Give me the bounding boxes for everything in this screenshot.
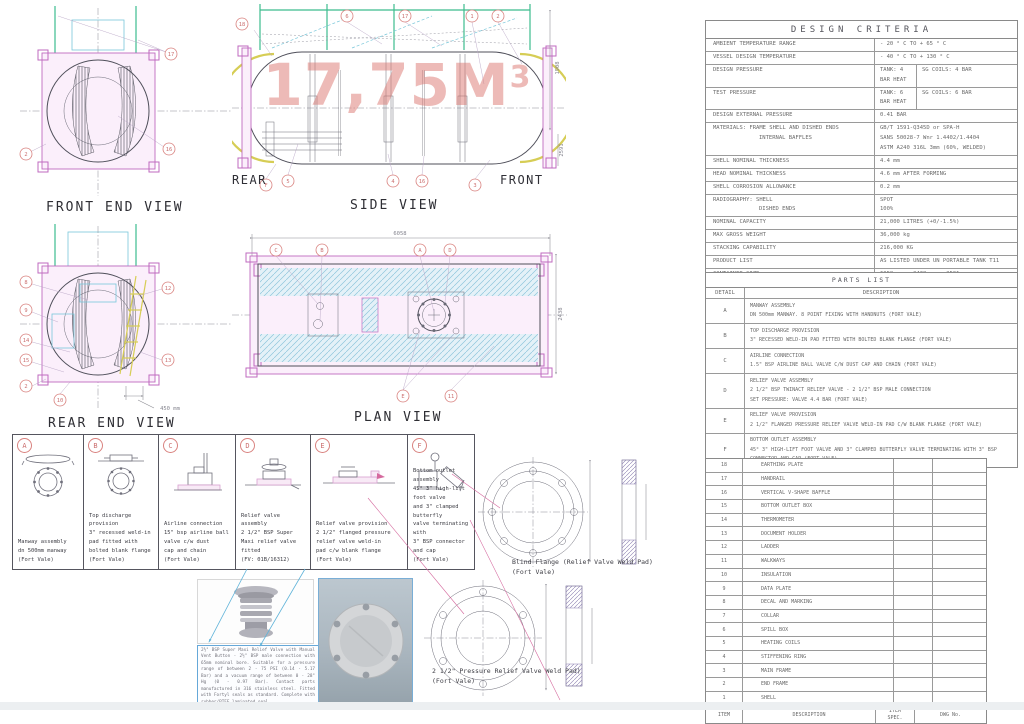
items-table-row: 4 STIFFENING RING	[706, 651, 986, 665]
parts-list-header: DETAIL DESCRIPTION	[706, 288, 1017, 299]
design-criteria-row: TEST PRESSURE TANK: 6 BAR HEATSG COILS: …	[706, 88, 1017, 111]
svg-text:17: 17	[168, 52, 175, 58]
relief-valve-photo-drawing	[227, 584, 285, 640]
parts-list-row: B TOP DISCHARGE PROVISION 3" RECESSED WE…	[706, 324, 1017, 349]
front-end-view: 17 2 16 FRONT END VIEW	[18, 6, 234, 222]
svg-text:3: 3	[473, 183, 476, 189]
detail-box-e: E Relief valve provision 2 1/2" flanged …	[311, 434, 408, 570]
items-table-row: 3 MAIN FRAME	[706, 664, 986, 678]
balloon-17: 17	[165, 48, 177, 60]
design-criteria-row: AMBIENT TEMPERATURE RANGE - 20 ° C TO + …	[706, 39, 1017, 52]
label-front: FRONT	[500, 173, 544, 187]
rear-end-view: 450 mm 8 9 14 15 2 12 13 10 REAR END VIE…	[18, 224, 234, 434]
side-view: 1908 2591 18 6 17 1 2 F 5 4 16 3 REAR FR…	[232, 4, 566, 216]
svg-text:C: C	[274, 248, 277, 254]
design-criteria-row: MAX GROSS WEIGHT 36,000 kg	[706, 230, 1017, 243]
detail-box-b: B Top discharge provision 3" recessed we…	[84, 434, 159, 570]
valve-spec-paragraph-1: 2½" BSP Super Maxi Relief Valve with Man…	[201, 648, 315, 706]
parts-list-rows: A MANWAY ASSEMBLY DN 500mm MANWAY. 8 POI…	[706, 299, 1017, 467]
front-end-view-title: FRONT END VIEW	[46, 200, 184, 215]
relief-pad-sketch-icon	[311, 451, 407, 499]
relief-valve-sketch-icon	[236, 451, 310, 499]
svg-text:16: 16	[419, 179, 426, 185]
sheet-bottom-strip	[0, 702, 1024, 710]
svg-text:2: 2	[24, 152, 27, 158]
items-table-rows: 18 EARTHING PLATE 17 HANDRAIL 16 VERTICA…	[706, 459, 986, 705]
items-table-row: 12 LADDER	[706, 541, 986, 555]
manway-sketch-icon	[13, 451, 83, 499]
design-criteria-row: NOMINAL CAPACITY 21,000 LITRES (+0/-1.5%…	[706, 217, 1017, 230]
items-table-row: 8 DECAL AND MARKING	[706, 596, 986, 610]
parts-list-row: C AIRLINE CONNECTION 1.5" BSP AIRLINE BA…	[706, 349, 1017, 374]
parts-list-row: A MANWAY ASSEMBLY DN 500mm MANWAY. 8 POI…	[706, 299, 1017, 324]
dim-2438: 2438	[558, 307, 564, 320]
svg-text:2: 2	[496, 14, 499, 20]
capacity-watermark: 17,75M3	[238, 56, 556, 114]
items-table-row: 16 VERTICAL V-SHAPE BAFFLE	[706, 486, 986, 500]
svg-text:14: 14	[23, 338, 30, 344]
svg-text:11: 11	[448, 394, 455, 400]
svg-text:9: 9	[24, 308, 27, 314]
svg-text:B: B	[320, 248, 323, 254]
dim-6058: 6058	[393, 231, 406, 237]
items-table-row: 13 DOCUMENT HOLDER	[706, 527, 986, 541]
balloon-2: 2	[20, 148, 32, 160]
svg-text:8: 8	[24, 280, 27, 286]
detail-box-d: D Relief valve assembly 2 1/2" BSP Super…	[236, 434, 311, 570]
svg-text:5: 5	[286, 179, 289, 185]
items-table-row: 9 DATA PLATE	[706, 582, 986, 596]
svg-text:10: 10	[57, 398, 64, 404]
design-criteria-row: DESIGN PRESSURE TANK: 4 BAR HEATSG COILS…	[706, 65, 1017, 88]
rear-end-view-title: REAR END VIEW	[48, 416, 176, 431]
prv-weld-pad-label: 2 1/2" Pressure Relief Valve Weld Pad) (…	[432, 666, 612, 687]
items-table-row: 7 COLLAR	[706, 610, 986, 624]
design-criteria-row: MATERIALS: FRAME SHELL AND DISHED ENDSIN…	[706, 123, 1017, 156]
svg-text:D: D	[448, 248, 451, 254]
valve-spec-caption: 2½" BSP Super Maxi Relief Valve with Man…	[197, 645, 319, 707]
design-criteria-row: RADIOGRAPHY: SHELLDISHED ENDS SPOT 100%	[706, 195, 1017, 218]
parts-list-row: D RELIEF VALVE ASSEMBLY 2 1/2" BSP TWINA…	[706, 374, 1017, 409]
svg-text:17: 17	[402, 14, 409, 20]
design-criteria-row: SHELL CORROSION ALLOWANCE 0.2 mm	[706, 182, 1017, 195]
items-table-row: 10 INSULATION	[706, 569, 986, 583]
design-criteria-row: HEAD NOMINAL THICKNESS 4.6 mm AFTER FORM…	[706, 169, 1017, 182]
items-table-row: 5 HEATING COILS	[706, 637, 986, 651]
design-criteria-row: VESSEL DESIGN TEMPERATURE - 40 ° C TO + …	[706, 52, 1017, 65]
svg-text:18: 18	[239, 22, 246, 28]
items-table-row: 15 BOTTOM OUTLET BOX	[706, 500, 986, 514]
items-table-row: 6 SPILL BOX	[706, 623, 986, 637]
blind-flange-label: Blind Flange (Relief Valve Weld Pad) (Fo…	[512, 557, 682, 578]
plan-view: 6058 2438	[232, 226, 567, 431]
label-rear: REAR	[232, 173, 267, 187]
parts-list-table: PARTS LIST DETAIL DESCRIPTION A MANWAY A…	[705, 272, 1018, 468]
detail-a-caption: Manway assembly dn 500mm manway (Fort Va…	[18, 538, 81, 565]
balloon-16: 16	[163, 143, 175, 155]
items-table-row: 17 HANDRAIL	[706, 473, 986, 487]
items-table-row: 14 THERMOMETER	[706, 514, 986, 528]
relief-valve-photo	[197, 579, 314, 644]
dim-2591: 2591	[559, 143, 565, 156]
svg-text:4: 4	[391, 179, 394, 185]
dim-450mm: 450 mm	[160, 406, 181, 412]
airline-valve-sketch-icon	[159, 451, 235, 499]
design-criteria-row: PRODUCT LIST AS LISTED UNDER UN PORTABLE…	[706, 256, 1017, 269]
svg-text:15: 15	[23, 358, 30, 364]
design-criteria-row: SHELL NOMINAL THICKNESS 4.4 mm	[706, 156, 1017, 169]
tank-container-drawing-sheet: 17 2 16 FRONT END VIEW	[0, 0, 1024, 710]
plan-view-title: PLAN VIEW	[354, 410, 442, 425]
rear-end-view-drawing: 450 mm 8 9 14 15 2 12 13 10	[18, 224, 234, 414]
weld-pad-photo	[318, 578, 413, 704]
items-table-row: 11 WALKWAYS	[706, 555, 986, 569]
svg-text:12: 12	[165, 286, 172, 292]
items-table: 18 EARTHING PLATE 17 HANDRAIL 16 VERTICA…	[705, 458, 987, 724]
detail-box-c: C Airline connection 15" bsp airline bal…	[159, 434, 236, 570]
plan-view-drawing: 6058 2438	[232, 226, 567, 406]
detail-boxes: A Manway assembly dn 500mm manway (Fort …	[12, 434, 475, 570]
design-criteria-row: DESIGN EXTERNAL PRESSURE 0.41 BAR	[706, 110, 1017, 123]
svg-text:E: E	[401, 394, 404, 400]
svg-text:6: 6	[345, 14, 348, 20]
svg-text:1: 1	[470, 14, 473, 20]
design-criteria-title: DESIGN CRITERIA	[706, 21, 1017, 39]
parts-list-row: E RELIEF VALVE PROVISION 2 1/2" FLANGED …	[706, 409, 1017, 434]
svg-text:16: 16	[166, 147, 173, 153]
weld-pad-photo-drawing	[321, 582, 411, 700]
svg-text:2: 2	[24, 384, 27, 390]
discharge-flange-sketch-icon	[84, 451, 158, 499]
svg-text:13: 13	[165, 358, 172, 364]
detail-box-a: A Manway assembly dn 500mm manway (Fort …	[12, 434, 84, 570]
front-end-view-drawing: 17 2 16	[18, 6, 234, 198]
items-table-row: 18 EARTHING PLATE	[706, 459, 986, 473]
side-view-title: SIDE VIEW	[350, 198, 438, 213]
items-table-row: 2 END FRAME	[706, 678, 986, 692]
design-criteria-row: STACKING CAPABILITY 216,000 KG	[706, 243, 1017, 256]
parts-list-title: PARTS LIST	[706, 273, 1017, 288]
